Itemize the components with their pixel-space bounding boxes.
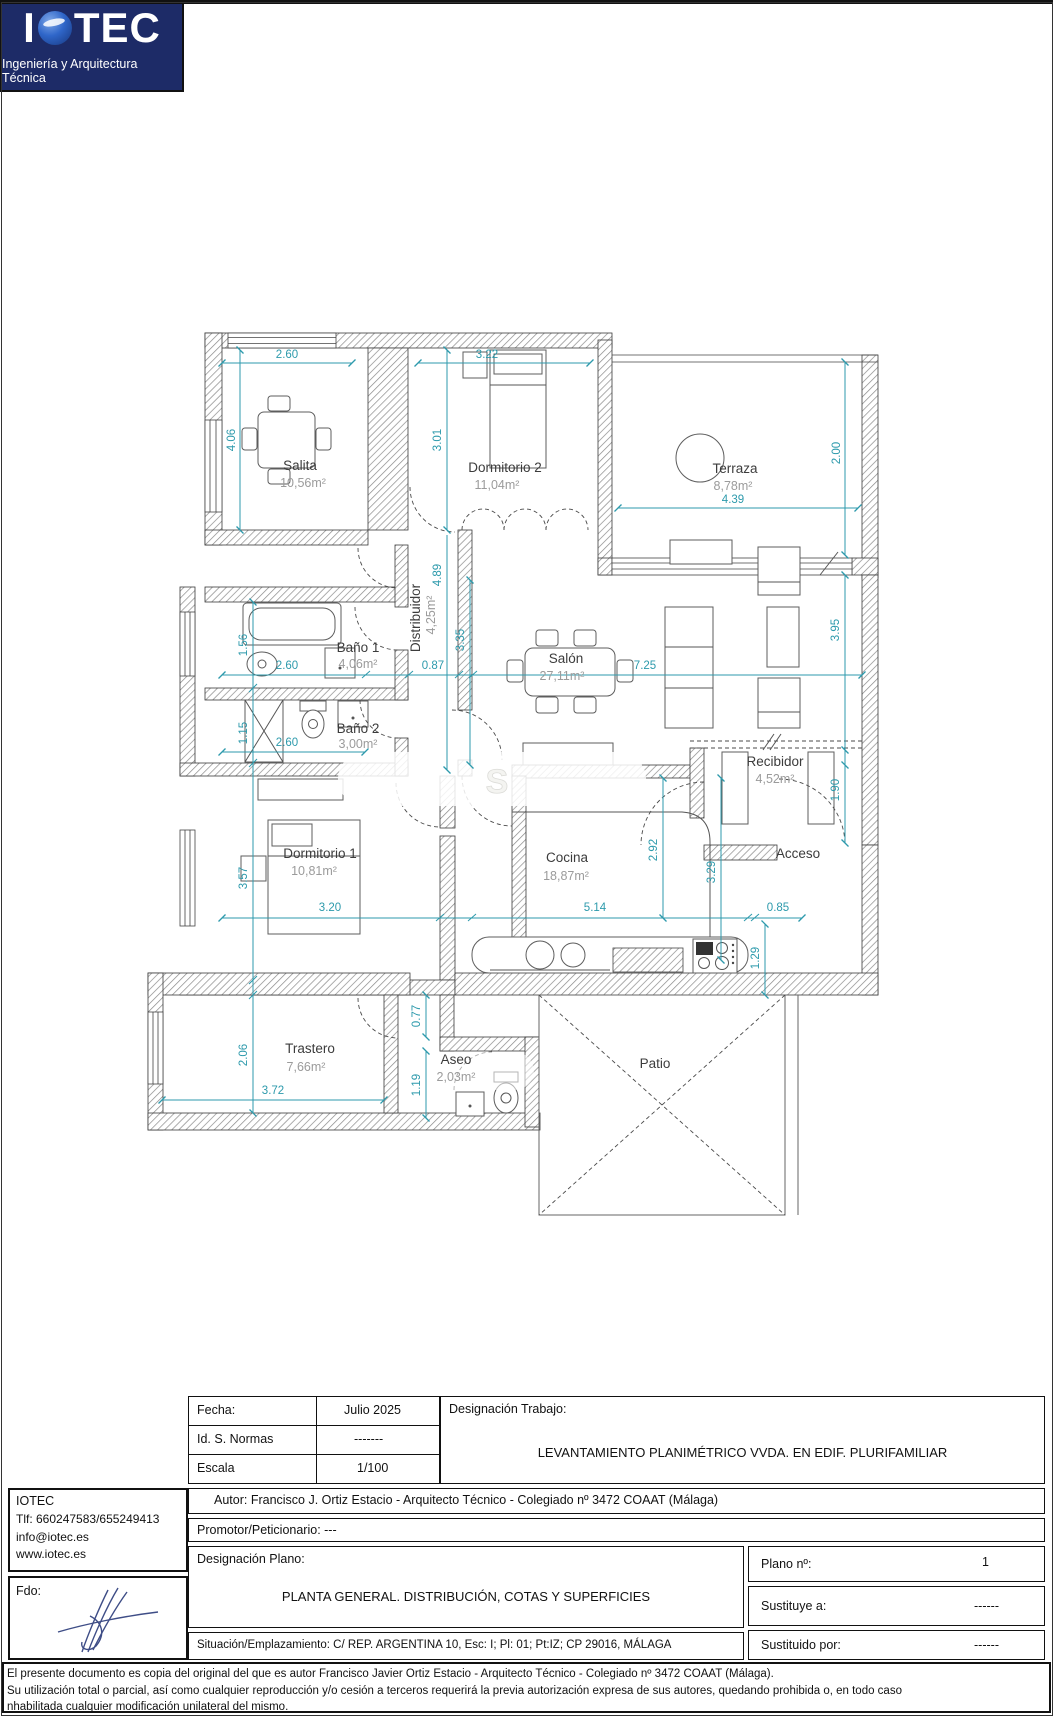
dim-recibidor-h: 1.90 xyxy=(830,779,842,801)
room-label-distribuidor: Distribuidor xyxy=(408,583,423,652)
room-area-banyo1: 4,06m² xyxy=(339,657,378,671)
disclaimer: El presente documento es copia del origi… xyxy=(2,1662,1051,1713)
trabajo-box: Designación Trabajo: LEVANTAMIENTO PLANI… xyxy=(440,1396,1045,1484)
room-area-salita: 10,56m² xyxy=(280,476,326,490)
plan-sheet: S 2.60 xyxy=(0,0,1053,1716)
dim-salita-w: 2.60 xyxy=(276,349,298,361)
patio-court xyxy=(539,995,798,1215)
room-area-aseo: 2,03m² xyxy=(437,1070,476,1084)
room-area-distribuidor: 4,25m² xyxy=(424,596,438,635)
dim-cocina-d: 3.29 xyxy=(706,861,718,883)
room-label-banyo1: Baño 1 xyxy=(337,640,380,655)
dim-dorm1-h: 3.57 xyxy=(238,867,250,889)
situacion-row: Situación/Emplazamiento: C/ REP. ARGENTI… xyxy=(188,1632,744,1660)
dim-salita-h: 4.06 xyxy=(226,429,238,451)
sustituye-box: Sustituye a: ------ xyxy=(748,1586,1045,1626)
contact-name: IOTEC xyxy=(16,1494,54,1508)
sustituido-label: Sustituido por: xyxy=(761,1638,841,1652)
dim-recibidor-w: 0.85 xyxy=(767,902,789,914)
dim-paso-bajo: 0.77 xyxy=(411,1005,423,1027)
dim-banyo1-h: 1.56 xyxy=(238,634,250,656)
room-label-recibidor: Recibidor xyxy=(746,754,804,769)
promotor-row: Promotor/Peticionario: --- xyxy=(188,1518,1045,1542)
sustituido-value: ------ xyxy=(974,1638,999,1652)
dim-trastero-h: 2.06 xyxy=(238,1044,250,1066)
normas-label: Id. S. Normas xyxy=(197,1432,273,1446)
autor-text: Autor: Francisco J. Ortiz Estacio - Arqu… xyxy=(214,1493,718,1507)
contact-email: info@iotec.es xyxy=(16,1530,89,1544)
sustituye-label: Sustituye a: xyxy=(761,1599,826,1613)
dim-dorm2-w: 3.22 xyxy=(476,349,498,361)
room-label-cocina: Cocina xyxy=(546,850,589,865)
plano-label: Designación Plano: xyxy=(197,1552,305,1566)
room-label-terraza: Terraza xyxy=(712,461,758,476)
room-area-terraza: 8,78m² xyxy=(714,479,753,493)
normas-value: ------- xyxy=(354,1432,383,1446)
dim-banyo2-h: 1.15 xyxy=(238,722,250,744)
situacion-text: Situación/Emplazamiento: C/ REP. ARGENTI… xyxy=(197,1639,671,1651)
promotor-text: Promotor/Peticionario: --- xyxy=(197,1523,337,1537)
plano-box: Designación Plano: PLANTA GENERAL. DISTR… xyxy=(188,1546,744,1628)
dim-trastero-w: 3.72 xyxy=(262,1085,284,1097)
room-label-trastero: Trastero xyxy=(285,1041,335,1056)
contact-tlf: Tlf: 660247583/655249413 xyxy=(16,1512,159,1526)
fecha-row: Fecha: Julio 2025 xyxy=(188,1396,440,1426)
signature xyxy=(30,1586,180,1656)
plano-value: PLANTA GENERAL. DISTRIBUCIÓN, COTAS Y SU… xyxy=(189,1589,743,1604)
plano-num-box: Plano nº: 1 xyxy=(748,1546,1045,1582)
disclaimer-line2: Su utilización total o parcial, así como… xyxy=(7,1683,1046,1700)
room-label-dormitorio2: Dormitorio 2 xyxy=(468,460,542,475)
dim-pasillo-w: 0.87 xyxy=(422,660,444,672)
dim-dorm2-h: 3.01 xyxy=(432,429,444,451)
dim-banyo1-w: 2.60 xyxy=(276,660,298,672)
room-area-banyo2: 3,00m² xyxy=(339,737,378,751)
dim-salon-d: 3.95 xyxy=(830,619,842,641)
watermark-letter: S xyxy=(486,763,509,801)
room-label-patio: Patio xyxy=(640,1056,671,1071)
logo-sphere-icon xyxy=(38,11,72,45)
dim-banyo2-w: 2.60 xyxy=(276,737,298,749)
room-label-banyo2: Baño 2 xyxy=(337,721,380,736)
dim-terraza-h: 2.00 xyxy=(831,442,843,464)
room-area-recibidor: 4,52m² xyxy=(756,772,795,786)
room-label-salon: Salón xyxy=(549,651,584,666)
room-area-dormitorio1: 10,81m² xyxy=(291,864,337,878)
dim-cocina-h: 2.92 xyxy=(648,839,660,861)
room-area-dormitorio2: 11,04m² xyxy=(475,478,520,492)
dim-aseo-h: 1.19 xyxy=(411,1074,423,1096)
sustituye-value: ------ xyxy=(974,1599,999,1613)
plano-num-value: 1 xyxy=(982,1555,989,1569)
disclaimer-line1: El presente documento es copia del origi… xyxy=(7,1666,1046,1683)
dim-dorm1-w: 3.20 xyxy=(319,902,341,914)
disclaimer-line3: nhabilitada cualquier modificación unila… xyxy=(7,1699,1046,1716)
room-label-aseo: Aseo xyxy=(441,1052,472,1067)
plano-num-label: Plano nº: xyxy=(761,1557,811,1571)
fdo-box: Fdo: xyxy=(8,1576,188,1660)
escala-row: Escala 1/100 xyxy=(188,1454,440,1484)
contact-box: IOTEC Tlf: 660247583/655249413 info@iote… xyxy=(8,1488,188,1572)
room-label-salita: Salita xyxy=(283,458,317,473)
escala-label: Escala xyxy=(197,1461,235,1475)
floor-plan: S 2.60 xyxy=(0,0,1053,1290)
room-area-trastero: 7,66m² xyxy=(287,1060,326,1074)
dim-cocina-w: 5.14 xyxy=(584,902,607,914)
room-label-dormitorio1: Dormitorio 1 xyxy=(283,846,357,861)
fecha-value: Julio 2025 xyxy=(344,1403,401,1417)
room-area-cocina: 18,87m² xyxy=(543,869,589,883)
trabajo-value: LEVANTAMIENTO PLANIMÉTRICO VVDA. EN EDIF… xyxy=(441,1445,1044,1460)
dim-salon-w: 7.25 xyxy=(634,660,656,672)
dim-paso-cocina: 1.29 xyxy=(750,947,762,969)
dim-distribuidor-h: 4.89 xyxy=(432,564,444,586)
room-label-acceso: Acceso xyxy=(776,846,820,861)
sustituido-box: Sustituido por: ------ xyxy=(748,1630,1045,1660)
room-area-salon: 27,11m² xyxy=(540,669,585,683)
trabajo-label: Designación Trabajo: xyxy=(449,1402,566,1416)
dim-terraza-w: 4.39 xyxy=(722,494,744,506)
autor-row: Autor: Francisco J. Ortiz Estacio - Arqu… xyxy=(188,1488,1045,1514)
normas-row: Id. S. Normas ------- xyxy=(188,1425,440,1455)
contact-web: www.iotec.es xyxy=(16,1547,86,1561)
fecha-label: Fecha: xyxy=(197,1403,235,1417)
dim-salon-h: 3.35 xyxy=(455,629,467,651)
escala-value: 1/100 xyxy=(357,1461,388,1475)
